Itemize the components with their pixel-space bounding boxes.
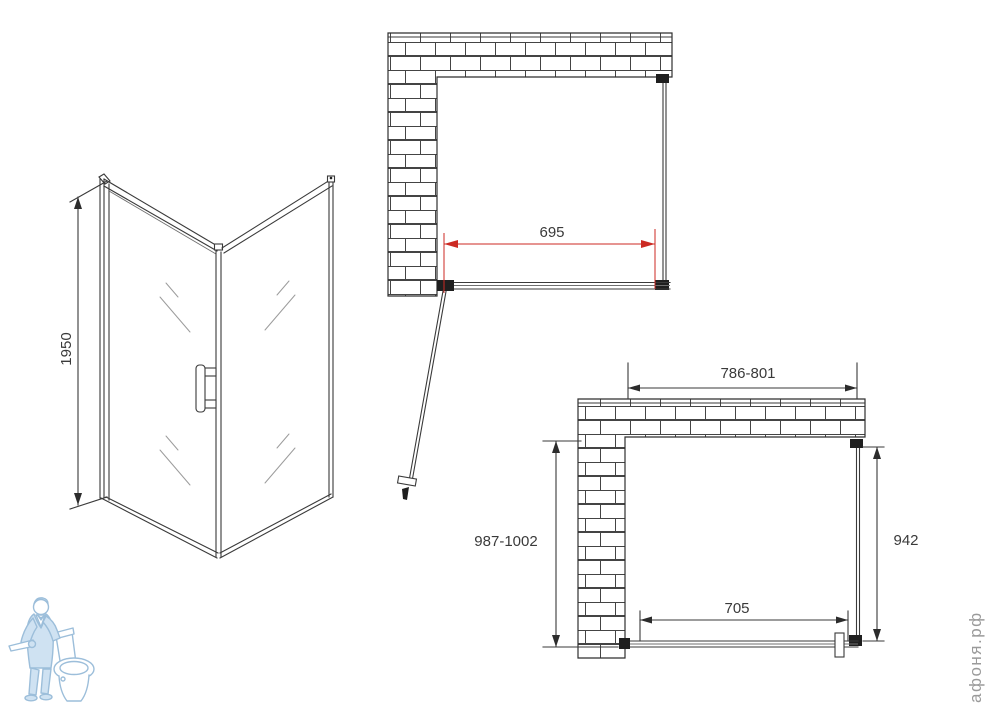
overall-depth-label: 987-1002 (474, 533, 537, 550)
plumber-head (34, 600, 49, 615)
open-door (398, 291, 446, 500)
plumber-right-leg (41, 669, 51, 694)
side-panel-label: 942 (893, 532, 918, 549)
brick-wall (578, 399, 865, 658)
watermark-text: афоня.рф (966, 611, 985, 703)
plumber-left-shoe (25, 695, 37, 701)
wall-profile (99, 174, 110, 500)
door-width-label: 705 (724, 600, 749, 617)
dimension-door-width: 705 (640, 600, 848, 641)
isometric-view: 1950 (58, 174, 335, 558)
plumber-right-shoe (40, 694, 52, 700)
height-dimension-label: 1950 (58, 332, 75, 365)
brick-wall (388, 33, 672, 296)
door-handle (196, 365, 216, 412)
overall-width-label: 786-801 (720, 365, 775, 382)
door-handle (835, 633, 844, 657)
opening-width-label: 695 (539, 224, 564, 241)
bottom-rail (437, 280, 670, 291)
toilet-pedestal (59, 675, 89, 701)
technical-drawing-canvas: 1950 695 (0, 0, 1000, 707)
side-panel-frame (220, 176, 335, 558)
side-glass-panel (655, 74, 669, 290)
glass-reflections (160, 281, 295, 485)
side-glass-panel (849, 439, 863, 646)
door-rail (619, 633, 858, 657)
plumber-logo (9, 598, 94, 701)
plan-view: 786-801 987-1002 942 705 (474, 363, 918, 658)
dimension-side-panel: 942 (863, 447, 919, 641)
plumber-hand (29, 641, 36, 648)
plumber-left-leg (29, 668, 39, 695)
dimension-overall-width: 786-801 (628, 363, 857, 399)
